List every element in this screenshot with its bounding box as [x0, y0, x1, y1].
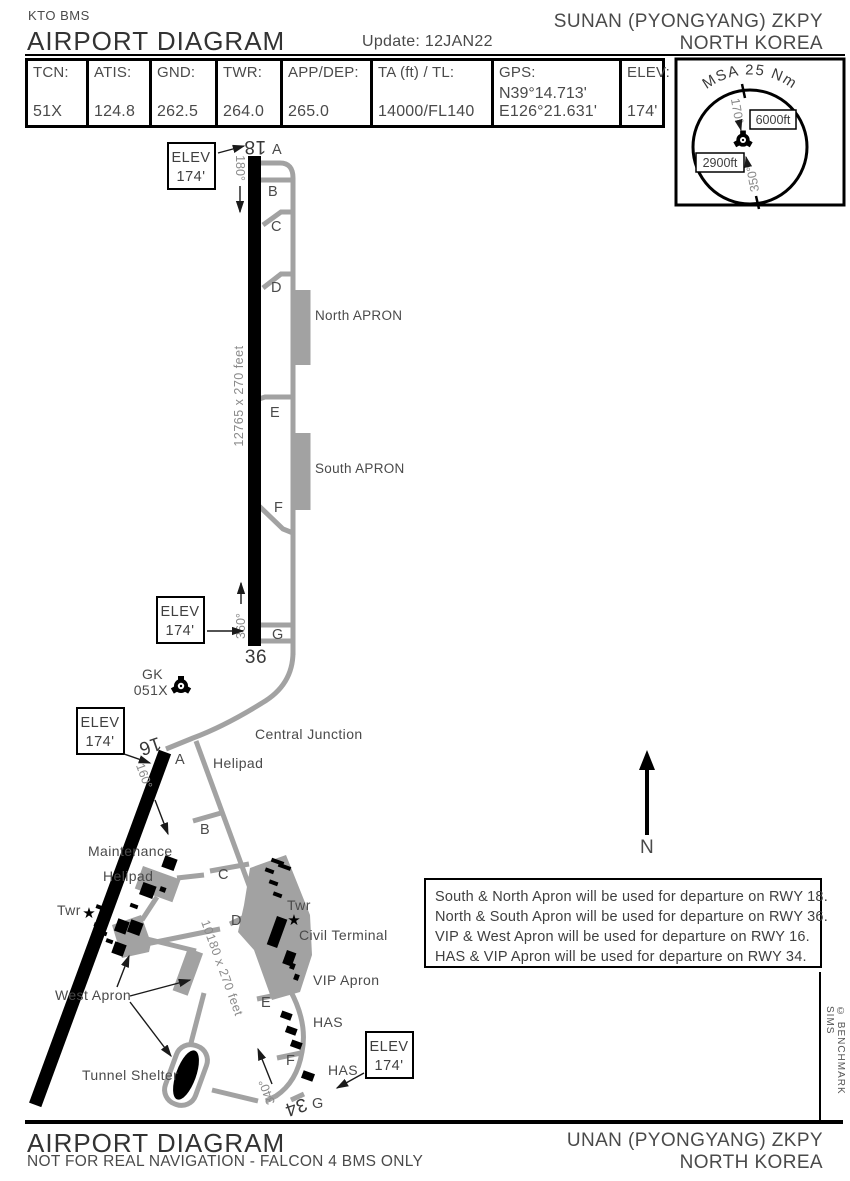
taxiway-maintenance — [177, 875, 204, 878]
rwy18-number: 18 — [244, 136, 266, 157]
elev-value: 174' — [177, 169, 206, 185]
taxiways-rwy18-36 — [166, 163, 293, 749]
rwy34-heading: 340° — [256, 1077, 278, 1106]
tower-label-west: Twr — [57, 902, 81, 918]
runway-16-34 — [29, 750, 171, 1107]
taxiway-label-e: E — [261, 995, 271, 1011]
has-label-upper: HAS — [313, 1014, 343, 1030]
taxiway-label-g: G — [272, 627, 283, 643]
west-apron-strip — [173, 948, 203, 996]
taxiway-e — [256, 397, 293, 400]
note-line: South & North Apron will be used for dep… — [435, 887, 820, 907]
taxiway-label-c: C — [271, 219, 281, 235]
airport-diagram-page: KTO BMS AIRPORT DIAGRAM Update: 12JAN22 … — [0, 0, 850, 1181]
elev-label: ELEV — [369, 1039, 408, 1055]
north-apron-label: North APRON — [315, 308, 402, 323]
rwy16-heading-arrow — [155, 800, 168, 834]
north-arrow-label: N — [640, 837, 654, 858]
beacon-channel: 051X — [134, 682, 169, 698]
tacan-icon — [171, 676, 191, 694]
taxiway-label-d: D — [231, 913, 241, 929]
tower-star-icon-west: ★ — [82, 905, 95, 922]
north-arrow: N — [639, 750, 655, 858]
elev-label: ELEV — [171, 150, 210, 166]
msa-rose: MSA 25 Nm 170° 350° 6000ft 2900ft — [676, 59, 844, 209]
rwy34-heading-arrow — [258, 1049, 272, 1084]
note-line: VIP & West Apron will be used for depart… — [435, 927, 820, 947]
taxiway-label-a: A — [272, 142, 282, 158]
elev-label: ELEV — [160, 604, 199, 620]
rwy18-heading: 180° — [233, 155, 247, 181]
elev-value: 174' — [86, 734, 115, 750]
taxiway-tunnel-east-link — [212, 1090, 258, 1101]
rwy34-number: 34 — [282, 1093, 310, 1120]
rwy16-34-dimensions: 10180 x 270 feet — [198, 918, 246, 1018]
beacon-gk: GK 051X — [134, 666, 191, 698]
helipad-label: Helipad — [213, 755, 263, 771]
taxiway-b — [193, 813, 221, 821]
taxiway-label-a: A — [175, 752, 185, 768]
footer-divider — [25, 1120, 843, 1124]
taxiway-label-c: C — [218, 867, 228, 883]
note-line: HAS & VIP Apron will be used for departu… — [435, 947, 820, 967]
north-apron — [296, 290, 311, 365]
runway-18-36 — [248, 156, 261, 646]
elev-box-rwy34: ELEV 174' — [337, 1032, 413, 1088]
airport-map: MSA 25 Nm 170° 350° 6000ft 2900ft — [0, 0, 850, 1181]
footer-country: NORTH KOREA — [680, 1152, 823, 1174]
elev-arrow — [218, 146, 244, 153]
beacon-ident: GK — [142, 666, 163, 682]
taxiway-label-b: B — [200, 822, 210, 838]
taxiway-tunnel-link — [191, 993, 204, 1043]
elev-value: 174' — [166, 623, 195, 639]
taxiway-west-link — [142, 897, 157, 920]
tunnel-shelter-label: Tunnel Shelter — [82, 1067, 178, 1083]
maintenance-label-line1: Maintenance — [88, 843, 173, 859]
maintenance-label-line2: Helipad — [103, 868, 153, 884]
msa-alt-low: 2900ft — [703, 156, 738, 170]
departure-notes-box: South & North Apron will be used for dep… — [424, 878, 822, 968]
elev-box-rwy18: ELEV 174' — [168, 143, 244, 189]
west-apron-arrows — [117, 956, 190, 1056]
footer-airport-name: UNAN (PYONGYANG) ZKPY — [567, 1130, 823, 1152]
taxiway-label-f: F — [274, 500, 283, 516]
taxiway-label-b: B — [268, 184, 278, 200]
rwy18-36-dimensions: 12765 x 270 feet — [232, 345, 246, 446]
south-apron — [296, 433, 311, 510]
msa-alt-high: 6000ft — [756, 113, 791, 127]
tower-label-east: Twr — [287, 897, 311, 913]
elev-box-rwy16: ELEV 174' — [77, 708, 150, 763]
footer-disclaimer: NOT FOR REAL NAVIGATION - FALCON 4 BMS O… — [27, 1153, 423, 1171]
elev-label: ELEV — [80, 715, 119, 731]
vip-apron-label: VIP Apron — [313, 972, 379, 988]
west-apron-arrow-tunnel — [130, 1002, 171, 1056]
copyright-divider — [819, 972, 821, 1120]
elev-box-rwy36: ELEV 174' — [157, 597, 243, 643]
taxiway-label-e: E — [270, 405, 280, 421]
copyright-text: © BENCHMARK SIMS — [824, 1006, 846, 1118]
south-apron-label: South APRON — [315, 461, 405, 476]
note-line: North & South Apron will be used for dep… — [435, 907, 820, 927]
civil-terminal-label: Civil Terminal — [299, 927, 388, 943]
west-apron-label: West Apron — [55, 987, 131, 1003]
elev-value: 174' — [375, 1058, 404, 1074]
rwy16-heading: 160° — [133, 761, 155, 790]
central-junction-label: Central Junction — [255, 726, 363, 742]
taxiway-label-d: D — [271, 280, 281, 296]
taxiway-label-f: F — [286, 1053, 295, 1069]
west-apron-arrow-buildings — [117, 956, 129, 987]
has-label-lower: HAS — [328, 1062, 358, 1078]
rwy36-number: 36 — [245, 647, 267, 668]
taxiway-label-g: G — [312, 1096, 323, 1112]
rwy36-heading: 360° — [234, 613, 248, 639]
